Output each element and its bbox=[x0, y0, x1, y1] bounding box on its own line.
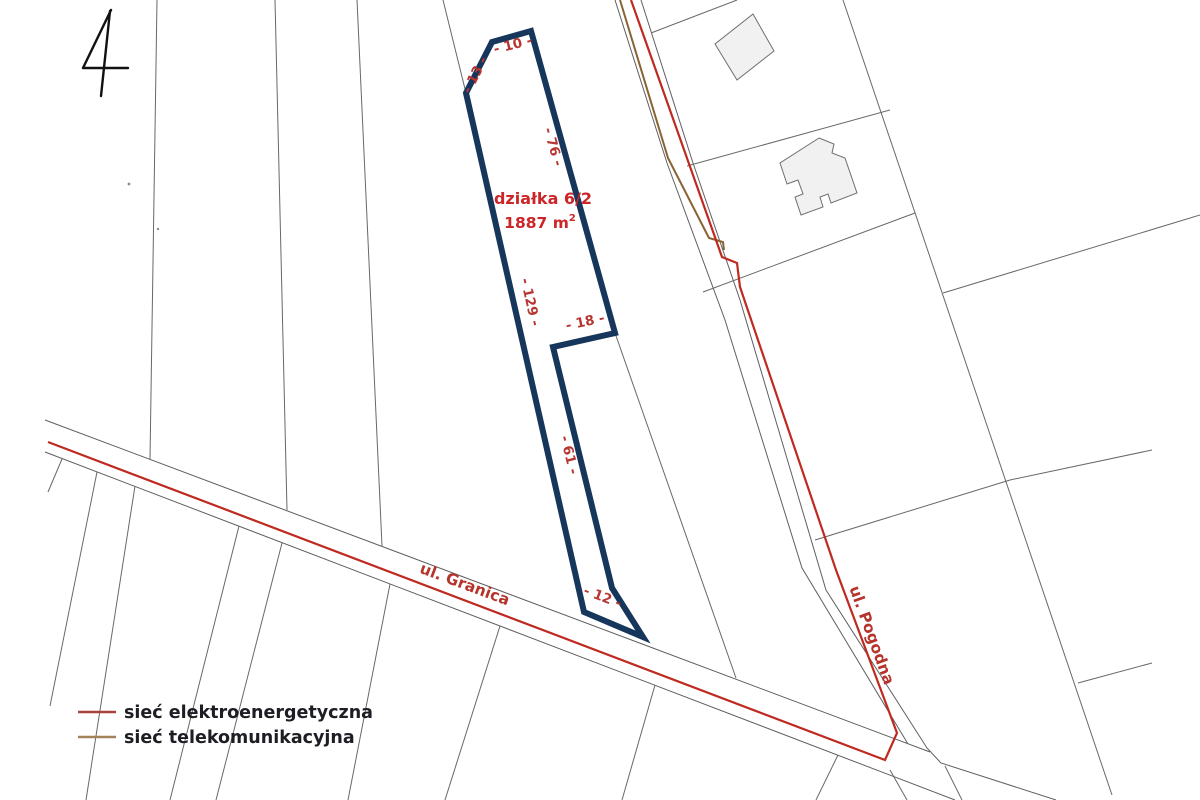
street-label-granica: ul. Granica bbox=[417, 559, 512, 609]
boundary-line bbox=[443, 0, 466, 93]
boundary-line bbox=[816, 755, 838, 800]
boundary-line bbox=[622, 685, 655, 800]
dimension-label-top: - 10 - bbox=[492, 33, 534, 58]
map-dot bbox=[128, 183, 131, 186]
parcel-area-exponent: 2 bbox=[569, 213, 576, 224]
legend-telecom-label: sieć telekomunikacyjna bbox=[124, 728, 355, 748]
boundary-line bbox=[357, 0, 382, 546]
building-footprint bbox=[780, 138, 857, 215]
street-label-pogodna: ul. Pogodna bbox=[845, 583, 897, 687]
dimension-label-bottom: - 12 - bbox=[581, 583, 624, 612]
boundary-line bbox=[170, 526, 239, 800]
parcel-name-label: działka 6/2 bbox=[494, 189, 592, 208]
parcel-outline bbox=[466, 31, 643, 637]
boundary-line bbox=[945, 766, 962, 800]
page-number-glyph bbox=[83, 10, 128, 96]
map-canvas: - 10 - - 13 - - 76 - - 129 - - 18 - - 61… bbox=[0, 0, 1200, 800]
boundary-line bbox=[445, 626, 500, 800]
boundary-line bbox=[216, 543, 282, 800]
boundary-line bbox=[48, 459, 62, 492]
boundary-line bbox=[50, 472, 97, 706]
boundary-line bbox=[815, 450, 1152, 540]
building-footprint bbox=[715, 14, 774, 80]
parcel-area-label: 1887 m2 bbox=[504, 213, 576, 232]
dimension-label-top-left: - 13 - bbox=[459, 54, 491, 96]
pogodna-east-edge bbox=[641, 0, 1056, 800]
map-dot bbox=[157, 228, 159, 230]
cadastral-map: - 10 - - 13 - - 76 - - 129 - - 18 - - 61… bbox=[0, 0, 1200, 800]
boundary-line bbox=[86, 486, 135, 800]
boundary-line bbox=[703, 213, 915, 292]
legend-power-label: sieć elektroenergetyczna bbox=[124, 703, 373, 723]
boundary-line bbox=[943, 215, 1200, 293]
boundary-line bbox=[1078, 663, 1152, 683]
boundary-line bbox=[348, 584, 390, 800]
dimension-label-step: - 18 - bbox=[564, 310, 606, 334]
legend: sieć elektroenergetyczna sieć telekomuni… bbox=[78, 703, 373, 748]
boundary-line bbox=[651, 0, 737, 33]
telecom-network-line bbox=[620, 0, 724, 250]
boundary-line bbox=[150, 0, 157, 459]
boundary-line bbox=[890, 770, 907, 800]
parcel-area-value: 1887 m bbox=[504, 214, 569, 232]
boundary-line bbox=[275, 0, 287, 510]
